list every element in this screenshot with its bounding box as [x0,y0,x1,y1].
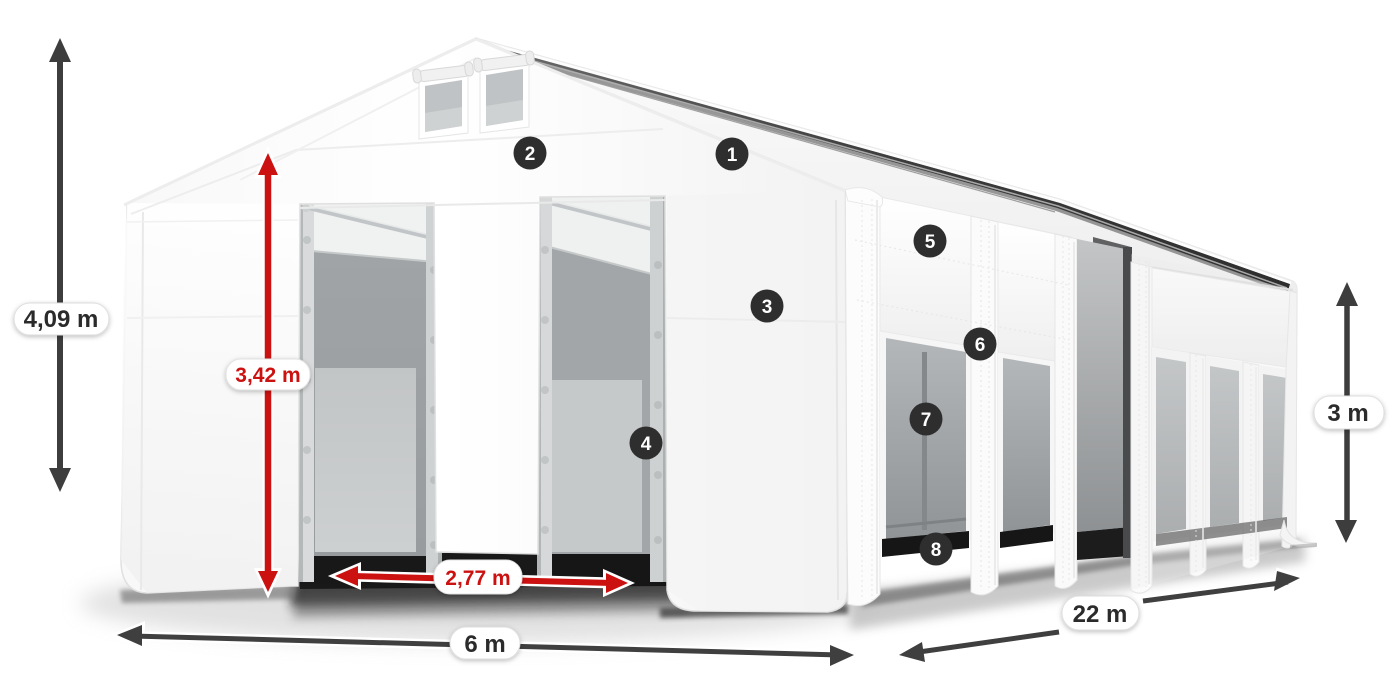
svg-text:6: 6 [975,335,986,356]
svg-text:2,77 m: 2,77 m [445,567,510,590]
svg-text:7: 7 [921,410,932,431]
svg-text:3,42 m: 3,42 m [235,364,300,387]
svg-text:4: 4 [641,434,652,455]
svg-text:1: 1 [727,145,738,166]
svg-text:3: 3 [762,297,773,318]
svg-text:3 m: 3 m [1327,400,1368,427]
svg-text:5: 5 [925,232,936,253]
svg-text:22 m: 22 m [1073,601,1128,628]
svg-text:6 m: 6 m [464,631,505,658]
svg-text:4,09 m: 4,09 m [24,306,99,333]
svg-text:2: 2 [525,144,536,165]
svg-text:8: 8 [931,540,942,561]
